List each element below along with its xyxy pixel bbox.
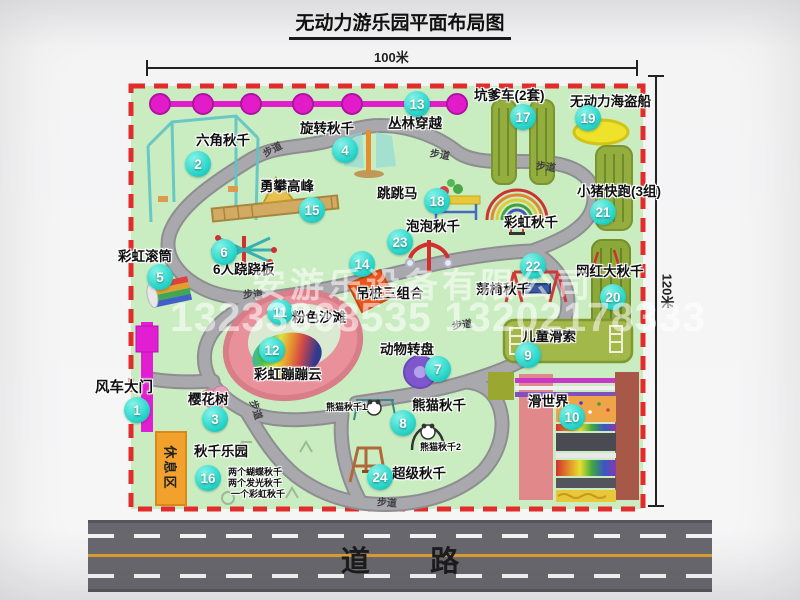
walkway-label: 步道 bbox=[429, 144, 451, 162]
height-dimension-label: 120米 bbox=[659, 274, 678, 309]
marker-number: 1 bbox=[133, 403, 141, 418]
marker-number: 20 bbox=[605, 290, 620, 305]
width-dimension-label: 100米 bbox=[374, 47, 409, 66]
walkway-label: 步道 bbox=[451, 315, 473, 333]
marker-number: 24 bbox=[372, 470, 387, 485]
label-panda-swing: 熊猫秋千 bbox=[412, 399, 466, 413]
marker-number: 18 bbox=[429, 194, 444, 209]
label-pit-cars: 坑爹车(2套) bbox=[474, 89, 545, 103]
marker-11: 11 bbox=[267, 299, 293, 325]
label-rotating-swing: 旋转秋千 bbox=[300, 122, 354, 136]
marker-21: 21 bbox=[590, 199, 616, 225]
marker-number: 15 bbox=[304, 203, 319, 218]
label-hexagon-swing: 六角秋千 bbox=[196, 134, 250, 148]
label-piggy-run: 小猪快跑(3组) bbox=[577, 185, 661, 199]
marker-5: 5 bbox=[147, 264, 173, 290]
marker-18: 18 bbox=[424, 188, 450, 214]
road-label: 道 路 bbox=[88, 538, 712, 580]
marker-number: 4 bbox=[341, 143, 349, 158]
marker-7: 7 bbox=[425, 356, 451, 382]
marker-number: 6 bbox=[220, 245, 228, 260]
marker-number: 22 bbox=[525, 259, 540, 274]
label-climbing-peak: 勇攀高峰 bbox=[260, 180, 314, 194]
label-animal-carousel: 动物转盘 bbox=[380, 343, 434, 357]
rest-area-label: 休息区 bbox=[162, 445, 181, 490]
label-rainbow-roller: 彩虹滚筒 bbox=[118, 250, 172, 264]
marker-10: 10 bbox=[559, 404, 585, 430]
marker-number: 8 bbox=[399, 416, 407, 431]
park-layout-screenshot: 无动力游乐园平面布局图 100米 120米 风车大门 六角秋千 樱花树 旋转秋千… bbox=[0, 0, 800, 600]
marker-23: 23 bbox=[387, 229, 413, 255]
marker-19: 19 bbox=[575, 105, 601, 131]
marker-number: 16 bbox=[200, 471, 215, 486]
marker-number: 10 bbox=[564, 410, 579, 425]
page-title: 无动力游乐园平面布局图 bbox=[0, 8, 800, 35]
marker-number: 9 bbox=[524, 348, 532, 363]
label-windmill-gate: 风车大门 bbox=[95, 381, 153, 396]
note-rainbow-swing: 一个彩虹秋千 bbox=[231, 490, 285, 499]
marker-number: 21 bbox=[595, 205, 610, 220]
label-rainbow-cloud: 彩虹蹦蹦云 bbox=[254, 368, 322, 382]
label-pink-beach: 粉色沙滩 bbox=[292, 311, 346, 325]
marker-2: 2 bbox=[185, 151, 211, 177]
label-rainbow-swing: 彩虹秋千 bbox=[504, 216, 558, 230]
note-panda-swing-1: 熊猫秋千1 bbox=[326, 403, 367, 412]
marker-1: 1 bbox=[124, 397, 150, 423]
marker-24: 24 bbox=[367, 464, 393, 490]
label-bubble-swing: 泡泡秋千 bbox=[406, 220, 460, 234]
marker-6: 6 bbox=[211, 239, 237, 265]
marker-number: 13 bbox=[409, 97, 424, 112]
marker-number: 3 bbox=[211, 412, 219, 427]
marker-number: 7 bbox=[434, 362, 442, 377]
marker-20: 20 bbox=[600, 284, 626, 310]
label-swing-chair: 荡椅秋千 bbox=[476, 283, 530, 297]
walkway-label: 步道 bbox=[535, 157, 557, 175]
marker-number: 19 bbox=[580, 111, 595, 126]
note-panda-swing-2: 熊猫秋千2 bbox=[420, 443, 461, 452]
marker-14: 14 bbox=[349, 251, 375, 277]
marker-number: 5 bbox=[156, 270, 164, 285]
note-butterfly-swings: 两个蝴蝶秋千 bbox=[228, 468, 282, 477]
marker-22: 22 bbox=[520, 253, 546, 279]
marker-16: 16 bbox=[195, 465, 221, 491]
marker-number: 12 bbox=[264, 343, 279, 358]
marker-12: 12 bbox=[259, 337, 285, 363]
marker-9: 9 bbox=[515, 342, 541, 368]
marker-3: 3 bbox=[202, 406, 228, 432]
marker-13: 13 bbox=[404, 91, 430, 117]
marker-number: 23 bbox=[392, 235, 407, 250]
label-cherry-tree: 樱花树 bbox=[188, 393, 229, 407]
label-jungle-crossing: 丛林穿越 bbox=[388, 117, 442, 131]
marker-17: 17 bbox=[510, 104, 536, 130]
walkway-label: 步道 bbox=[377, 493, 398, 509]
walkway-label: 步道 bbox=[243, 286, 263, 301]
marker-8: 8 bbox=[390, 410, 416, 436]
note-glow-swings: 两个发光秋千 bbox=[228, 479, 282, 488]
label-big-swing: 网红大秋千 bbox=[576, 265, 644, 279]
marker-4: 4 bbox=[332, 137, 358, 163]
marker-15: 15 bbox=[299, 197, 325, 223]
label-swing-paradise: 秋千乐园 bbox=[194, 445, 248, 459]
marker-number: 14 bbox=[354, 257, 369, 272]
marker-number: 17 bbox=[515, 110, 530, 125]
label-seesaw: 6人跷跷板 bbox=[213, 263, 275, 277]
label-hanging-pile: 吊桩三组合 bbox=[356, 287, 424, 301]
marker-number: 11 bbox=[273, 305, 287, 320]
label-super-swing: 超级秋千 bbox=[392, 467, 446, 481]
label-jumping-horse: 跳跳马 bbox=[377, 187, 418, 201]
marker-number: 2 bbox=[194, 157, 202, 172]
